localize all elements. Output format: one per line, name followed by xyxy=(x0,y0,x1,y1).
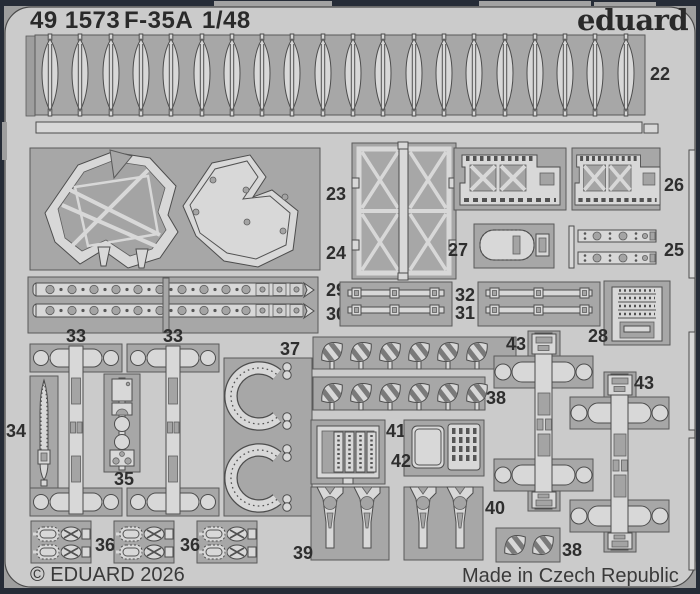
part-36-groups xyxy=(31,521,257,563)
part-label-43b: 43 xyxy=(634,373,654,393)
part-label-43a: 43 xyxy=(506,334,526,354)
part-label-31: 31 xyxy=(455,303,475,323)
part-label-40: 40 xyxy=(485,498,505,518)
part-label-35: 35 xyxy=(114,469,134,489)
catalog-number: 49 1573 xyxy=(30,7,120,34)
part-label-38b: 38 xyxy=(562,540,582,560)
part-29-30-strips xyxy=(28,277,318,333)
part-22-blade-row xyxy=(35,34,645,116)
part-23-zigzag-panels xyxy=(30,148,320,270)
part-label-41: 41 xyxy=(386,421,406,441)
part-34-pitot xyxy=(30,376,58,488)
made-in-text: Made in Czech Republic xyxy=(462,565,679,587)
part-label-42: 42 xyxy=(391,451,411,471)
part-label-34: 34 xyxy=(6,421,26,441)
part-35-column xyxy=(104,374,140,472)
part-label-26: 26 xyxy=(664,175,684,195)
part-label-36b: 36 xyxy=(180,535,200,555)
part-label-39: 39 xyxy=(293,543,313,563)
part-label-23: 23 xyxy=(326,184,346,204)
part-label-22: 22 xyxy=(650,64,670,84)
part-label-27: 27 xyxy=(448,240,468,260)
part-label-24: 24 xyxy=(326,243,346,263)
part-37-clamps xyxy=(224,358,312,516)
scale-label: 1/48 xyxy=(202,7,251,34)
part-label-37: 37 xyxy=(280,339,300,359)
brand-logo: eduard xyxy=(577,3,688,37)
part-label-36a: 36 xyxy=(95,535,115,555)
part-label-32: 32 xyxy=(455,285,475,305)
product-name: F-35A xyxy=(124,7,193,34)
part-26-brackets xyxy=(454,148,660,210)
part-label-28: 28 xyxy=(588,326,608,346)
part-28-perforated-plate xyxy=(604,281,670,345)
part-label-33b: 33 xyxy=(163,326,183,346)
part-38-small-group xyxy=(496,528,560,562)
part-27-capsule xyxy=(474,224,554,268)
part-39-glasses xyxy=(311,487,389,560)
part-42-panels xyxy=(404,420,484,476)
part-label-25: 25 xyxy=(664,240,684,260)
photoetch-product-photo: 49 1573 F-35A 1/48 eduard 22 23 24 26 27 xyxy=(0,0,700,594)
part-label-33a: 33 xyxy=(66,326,86,346)
part-41-frame xyxy=(311,420,385,484)
runner-strip xyxy=(36,122,658,133)
copyright-text: © EDUARD 2026 xyxy=(30,564,185,586)
part-24-truss-panel xyxy=(352,142,456,280)
photoetch-fret-image: 49 1573 F-35A 1/48 eduard 22 23 24 26 27 xyxy=(0,0,700,594)
part-label-38a: 38 xyxy=(486,388,506,408)
part-40-glasses xyxy=(404,487,483,560)
